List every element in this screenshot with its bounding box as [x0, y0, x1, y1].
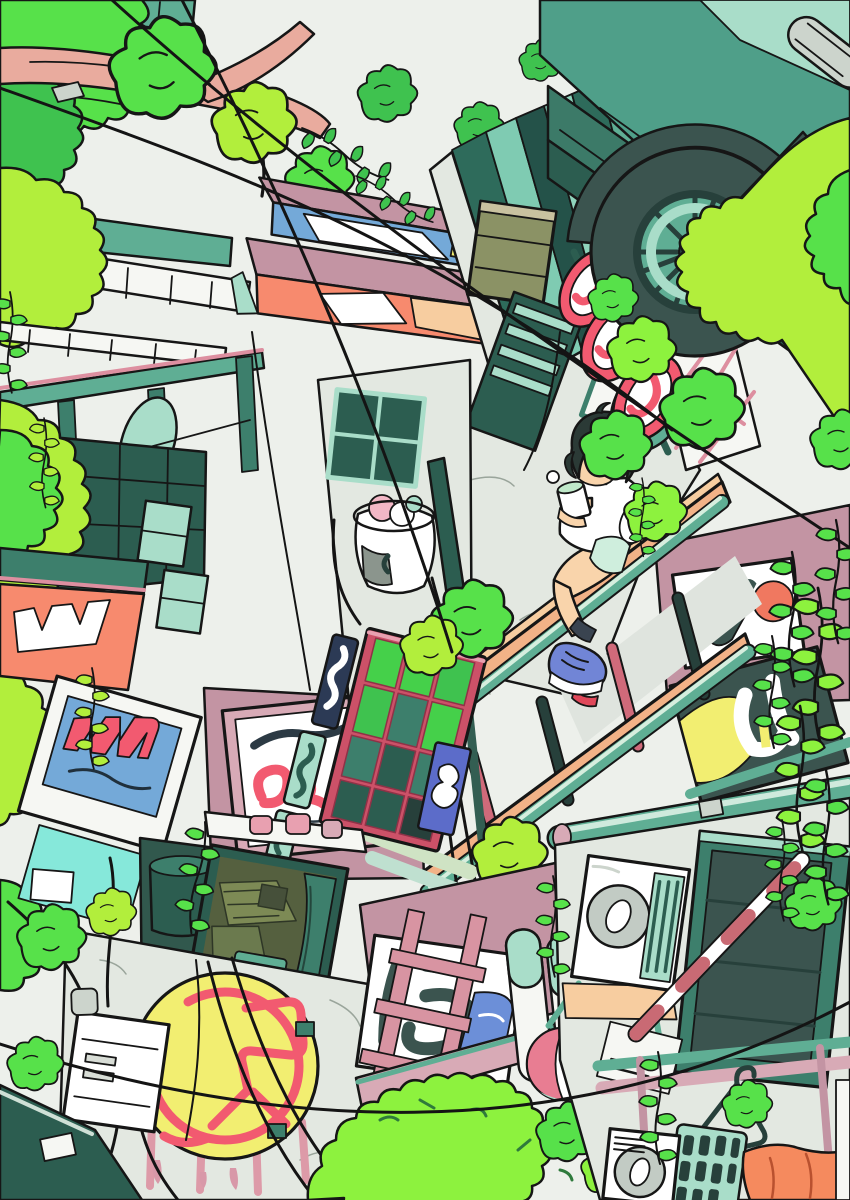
illustration-stage: [0, 0, 850, 1200]
olive-sign: [468, 201, 556, 305]
alley-illustration: [0, 0, 850, 1200]
bottom-right: [548, 798, 850, 1200]
salmon-sign: [0, 548, 148, 690]
laundry-cloth: [743, 1145, 850, 1200]
